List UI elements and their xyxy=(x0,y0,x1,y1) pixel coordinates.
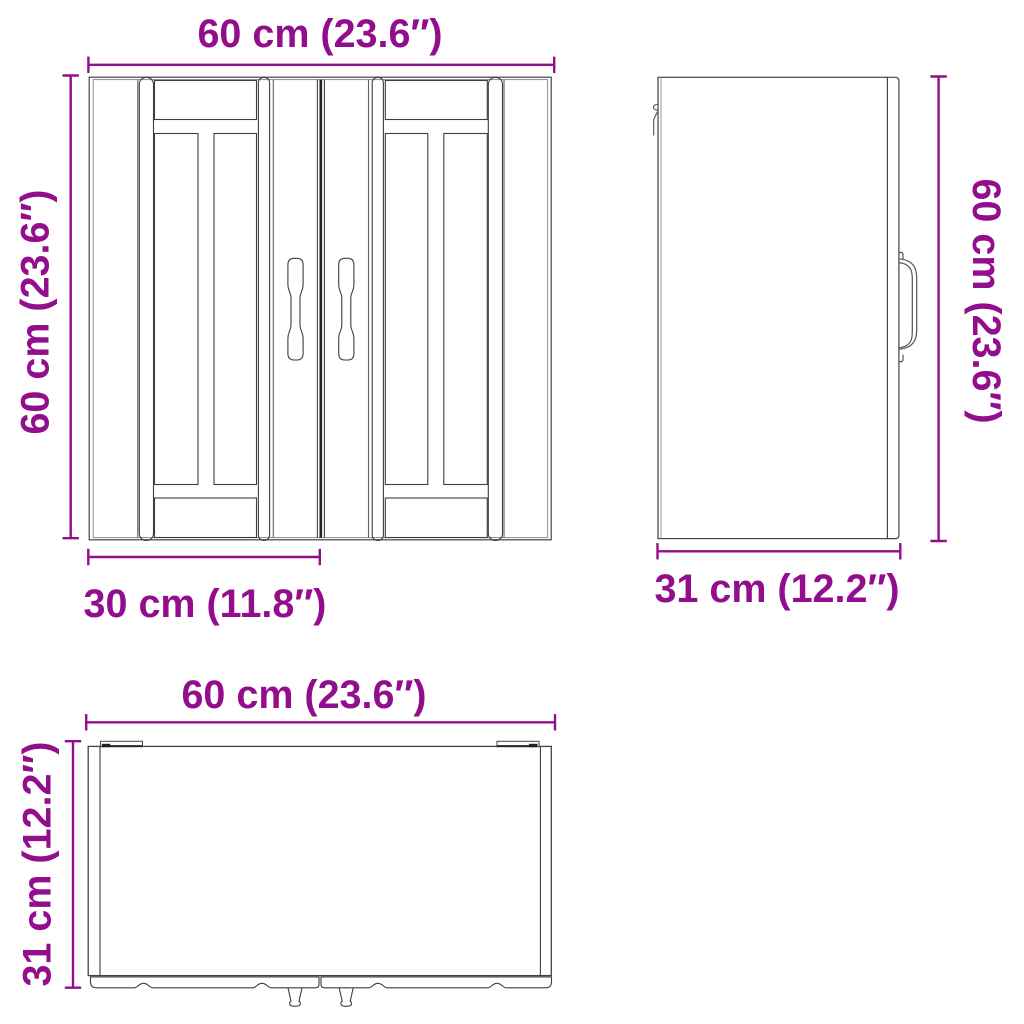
svg-text:60 cm (23.6″): 60 cm (23.6″) xyxy=(964,178,1008,423)
svg-text:60 cm (23.6″): 60 cm (23.6″) xyxy=(197,12,442,56)
svg-text:60 cm (23.6″): 60 cm (23.6″) xyxy=(14,189,58,434)
svg-text:60 cm (23.6″): 60 cm (23.6″) xyxy=(181,673,426,717)
svg-text:30 cm (11.8″): 30 cm (11.8″) xyxy=(84,582,327,626)
svg-text:31 cm (12.2″): 31 cm (12.2″) xyxy=(16,741,60,986)
svg-text:31 cm (12.2″): 31 cm (12.2″) xyxy=(654,567,899,611)
